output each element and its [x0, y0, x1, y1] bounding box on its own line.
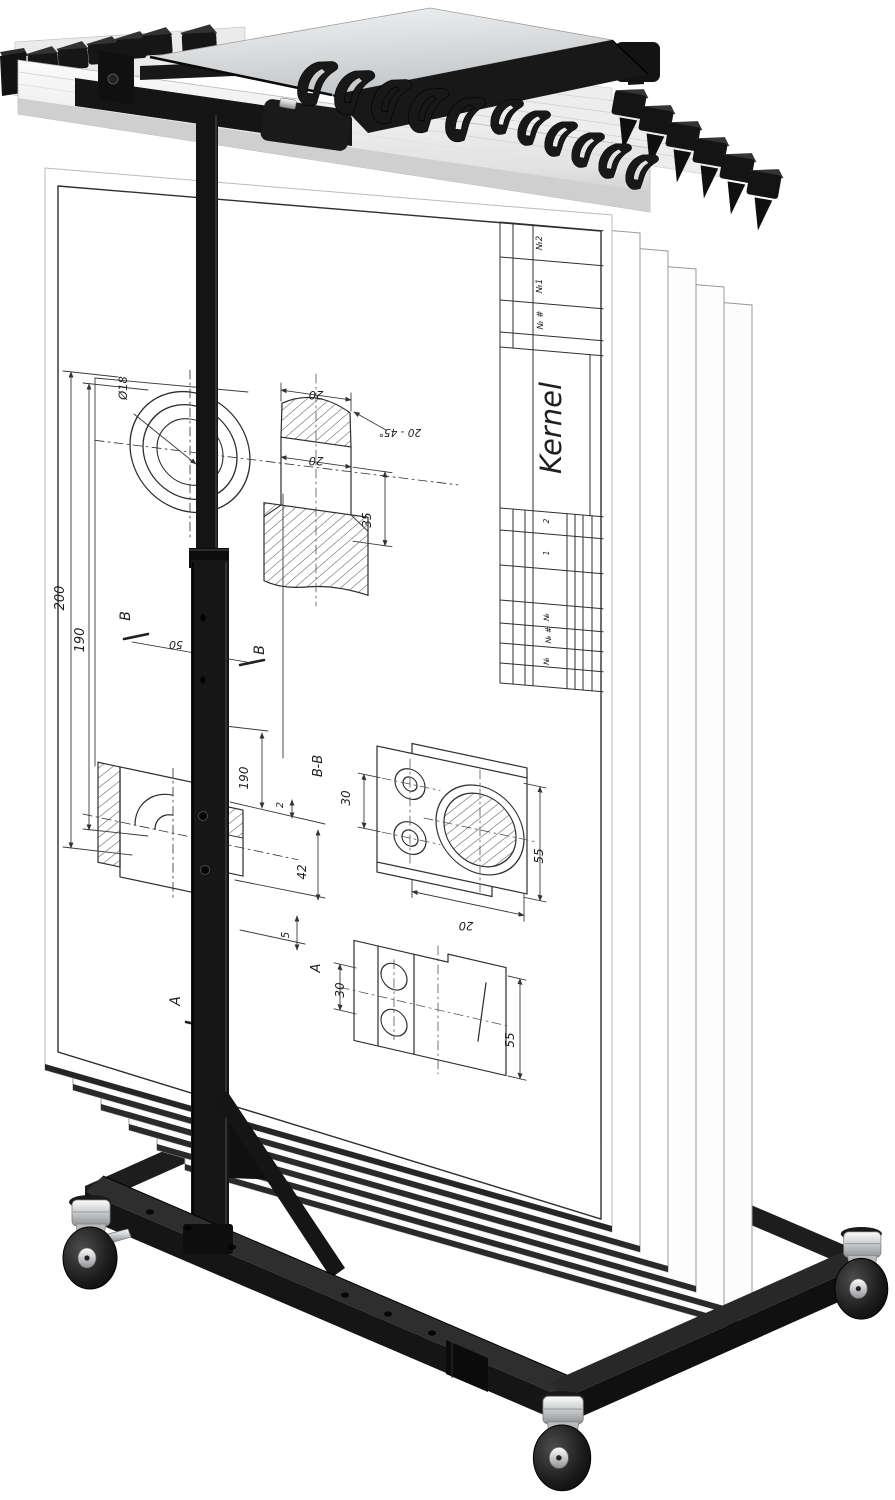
dim-label: 190 [237, 766, 251, 789]
dim-label: 190 [73, 628, 88, 653]
dim-label: 42 [295, 864, 309, 879]
dim-label: 20 - 45° [379, 426, 421, 438]
dim-label: 20 [309, 454, 324, 468]
dim-label: 20 [459, 919, 474, 933]
dim-label: B [252, 645, 268, 655]
dim-label: 55 [503, 1032, 517, 1047]
blueprint-stand-illustration: Ø18 200 190 20 20 - 45° 20 35 B B 50 190… [0, 0, 895, 1500]
dim-label: 200 [53, 586, 68, 611]
dim-label: A [168, 996, 184, 1007]
dim-label: 30 [339, 790, 353, 806]
title-cell: № [542, 613, 551, 622]
dim-label: 35 [360, 512, 374, 527]
dim-label: 2 [275, 802, 286, 808]
adjustment-hole [200, 676, 205, 683]
title-cell: 1 [542, 551, 551, 556]
dim-label: A [309, 964, 324, 974]
dim-label: 30 [333, 982, 347, 998]
caster-right [835, 1227, 888, 1319]
drawing-sheet: Ø18 200 190 20 20 - 45° 20 35 B B 50 190… [45, 168, 612, 1232]
product-photo: Ø18 200 190 20 20 - 45° 20 35 B B 50 190… [0, 0, 895, 1500]
dim-label: 5 [280, 931, 292, 938]
title-cell: № [542, 657, 551, 666]
dim-label: 20 [309, 388, 324, 402]
title-cell: № # [544, 627, 553, 644]
title-cell: № # [536, 311, 546, 331]
bolt [199, 812, 208, 821]
dim-label: Ø18 [116, 376, 130, 401]
dim-label: 50 [169, 638, 183, 651]
part-name: Kernel [534, 382, 568, 474]
title-cell: №1 [535, 279, 545, 294]
dim-label: B-B [311, 755, 326, 777]
adjustment-hole [200, 614, 205, 621]
bolt [201, 866, 210, 875]
title-cell: 2 [542, 518, 551, 523]
dim-label: 55 [532, 848, 546, 863]
title-cell: №2 [535, 236, 545, 251]
dim-label: B [118, 611, 134, 621]
